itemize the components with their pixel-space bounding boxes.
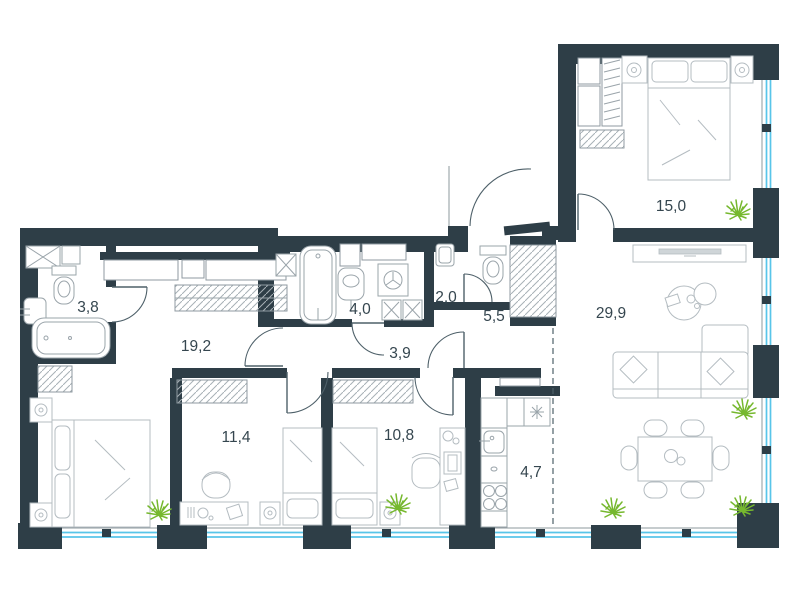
- room-label-bathroom-main: 4,0: [349, 301, 371, 318]
- sofa: [613, 325, 748, 398]
- wall-kitchen-top-b: [495, 386, 560, 396]
- room-label-bedroom-middle: 10,8: [384, 427, 414, 444]
- kitchen-niche: [500, 378, 540, 386]
- closet-box: [104, 260, 178, 280]
- office-chair: [412, 454, 440, 489]
- room-label-corridor: 3,9: [389, 345, 411, 362]
- small-sink-icon: [436, 244, 454, 266]
- pillar-bottom-1: [157, 525, 207, 549]
- window-mullion: [762, 446, 771, 454]
- wall-top-left: [20, 228, 278, 246]
- shaft-small: [38, 366, 72, 392]
- wall-11-4-10-8: [321, 378, 333, 527]
- nightstand: [622, 56, 647, 83]
- wardrobe-shelf: [578, 58, 600, 84]
- wall-11-4-top: [172, 368, 287, 378]
- room-label-entry-hall: 5,5: [483, 308, 505, 325]
- dining-set: [621, 420, 729, 498]
- window-right-bedroom: [762, 80, 771, 188]
- bathtub-icon: [32, 318, 110, 358]
- door-apartment-entry: [470, 169, 550, 235]
- room-label-wc: 2,0: [435, 289, 457, 306]
- room-label-living: 29,9: [596, 305, 626, 322]
- room-label-bedroom-left: 11,4: [221, 429, 250, 446]
- window-bottom-2: [207, 528, 303, 537]
- wardrobe-hatched: [580, 130, 624, 148]
- single-bed: [332, 428, 377, 525]
- room-bedroom-middle: [332, 380, 465, 525]
- wardrobe-hatched: [177, 380, 247, 403]
- room-bedroom-left: [177, 380, 322, 525]
- door-bathroom-small: [112, 287, 147, 322]
- tv-console: [633, 245, 746, 262]
- room-wc: [436, 244, 506, 284]
- chair: [202, 472, 230, 498]
- nightstand: [30, 503, 52, 527]
- door-bathroom-main: [352, 323, 384, 355]
- wardrobe-shelf: [578, 86, 600, 126]
- door-bedroom-middle: [415, 377, 453, 415]
- laundry-units-icon: [382, 300, 422, 320]
- room-label-bedroom-top: 15,0: [656, 198, 687, 215]
- room-kitchen: [479, 398, 550, 527]
- kitchen-counter: [479, 398, 507, 527]
- chair: [644, 420, 667, 436]
- niche-box: [362, 244, 406, 260]
- nightstand: [30, 398, 52, 422]
- single-bed: [283, 428, 322, 525]
- desk: [440, 428, 465, 525]
- vent-box-icon: [276, 254, 296, 276]
- pillar-bottom-4: [591, 525, 641, 549]
- room-bedroom-top: [578, 56, 753, 180]
- window-mullion: [102, 529, 111, 537]
- pillar-right-mid-upper: [753, 188, 779, 258]
- vent-shaft: [510, 245, 556, 317]
- wardrobe-rail: [602, 58, 622, 126]
- chair: [681, 482, 704, 498]
- nightstand: [260, 502, 280, 525]
- coffee-table: [665, 283, 716, 320]
- pillar-bottom-3: [449, 525, 495, 549]
- washing-machine-icon: [378, 264, 408, 296]
- window-mullion: [762, 124, 771, 132]
- pillar-right-mid-lower: [753, 345, 779, 398]
- dining-table: [638, 437, 712, 481]
- wall-bedroom-left: [558, 44, 576, 242]
- window-mullion: [682, 529, 691, 537]
- chair: [713, 446, 729, 470]
- pillar-top-right: [753, 44, 779, 80]
- door-corridor-entry: [428, 332, 464, 368]
- nightstand: [731, 56, 753, 83]
- chair: [621, 446, 637, 470]
- room-label-bathroom-small: 3,8: [77, 299, 99, 316]
- wardrobe-hatched: [333, 380, 413, 403]
- room-label-kitchen: 4,7: [520, 464, 542, 481]
- closet-box: [182, 260, 204, 278]
- door-master-bedroom: [245, 328, 283, 366]
- niche-box: [340, 244, 360, 266]
- wardrobe-hatched: [175, 285, 287, 311]
- double-bed: [648, 58, 730, 180]
- wall-10-8-kitchen: [465, 368, 481, 527]
- fridge-icon: [530, 405, 544, 419]
- wall-left: [20, 228, 38, 527]
- shaft-cap-bottom: [510, 317, 556, 326]
- desk: [180, 502, 248, 525]
- double-bed: [52, 420, 150, 527]
- wall-bedroom-living: [613, 228, 756, 242]
- door-bedroom-top: [578, 194, 614, 230]
- tv-icon: [659, 249, 721, 254]
- floor-plan: 3,8 19,2 4,0 2,0 5,5 3,9 29,9 15,0 11,4 …: [0, 0, 800, 600]
- window-mullion: [762, 296, 771, 304]
- toilet-icon: [52, 266, 76, 304]
- pillar-bottom-2: [303, 525, 351, 549]
- toilet-icon: [480, 246, 506, 284]
- window-mullion: [536, 529, 545, 537]
- window-bottom-3: [351, 528, 449, 537]
- window-mullion: [382, 529, 391, 537]
- wall-10-8-top: [332, 368, 420, 378]
- vent-box-icon: [26, 246, 80, 268]
- chair: [644, 482, 667, 498]
- bathtub-icon: [300, 246, 336, 324]
- wall-entry-left-stub: [448, 226, 468, 240]
- chair: [681, 420, 704, 436]
- room-label-master-bedroom: 19,2: [181, 338, 211, 355]
- wall-kitchen-top-a: [481, 368, 541, 378]
- room-living: [613, 245, 748, 498]
- wall-4-0-2-0: [424, 240, 434, 327]
- closet-box: [206, 260, 286, 280]
